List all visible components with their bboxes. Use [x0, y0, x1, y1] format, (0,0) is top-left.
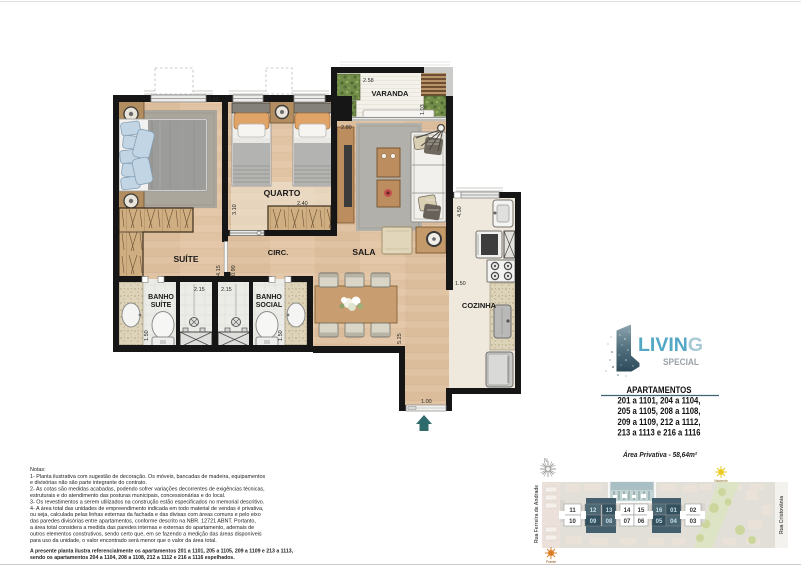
svg-text:07: 07: [624, 519, 631, 525]
svg-text:5.25: 5.25: [397, 333, 403, 344]
svg-text:BANHO: BANHO: [256, 294, 282, 301]
svg-text:2.40: 2.40: [297, 201, 308, 207]
svg-text:213 a 1113 e 216 a 1116: 213 a 1113 e 216 a 1116: [618, 428, 701, 438]
svg-text:VARANDA: VARANDA: [372, 89, 410, 98]
svg-text:201 a 1101, 204 a 1104,: 201 a 1101, 204 a 1104,: [618, 396, 701, 406]
svg-text:16: 16: [656, 508, 663, 514]
svg-text:Poente: Poente: [546, 560, 556, 564]
svg-text:a área total considera a medid: a área total considera a medida das pare…: [30, 525, 254, 531]
svg-text:04: 04: [670, 519, 677, 525]
svg-text:1.50: 1.50: [144, 330, 150, 341]
svg-text:estruturais e do atendimento d: estruturais e do atendimento das postura…: [30, 493, 225, 499]
svg-text:10: 10: [569, 519, 576, 525]
svg-text:A presente planta ilustra refe: A presente planta ilustra referencialmen…: [30, 549, 294, 555]
svg-text:13: 13: [606, 508, 613, 514]
svg-text:BANHO: BANHO: [148, 294, 174, 301]
svg-text:1- Planta ilustrativa com suge: 1- Planta ilustrativa com sugestão de de…: [30, 474, 266, 480]
svg-text:2.80: 2.80: [341, 125, 352, 131]
svg-text:11: 11: [569, 508, 576, 514]
svg-text:SUÍTE: SUÍTE: [151, 300, 172, 309]
svg-text:Nascente: Nascente: [714, 479, 728, 483]
svg-text:para uso da unidade, o valor e: para uso da unidade, o valor encontrado …: [30, 538, 217, 544]
svg-text:14: 14: [624, 508, 631, 514]
svg-text:15: 15: [638, 508, 645, 514]
svg-text:CIRC.: CIRC.: [268, 248, 288, 257]
svg-text:SPECIAL: SPECIAL: [663, 357, 699, 368]
svg-text:Notas:: Notas:: [30, 467, 46, 473]
svg-text:1.50: 1.50: [278, 330, 284, 341]
svg-text:08: 08: [606, 519, 613, 525]
svg-text:Rua Ferreira de Andrade: Rua Ferreira de Andrade: [534, 485, 540, 543]
svg-text:12: 12: [590, 508, 597, 514]
svg-text:09: 09: [590, 519, 597, 525]
svg-text:2- As cotas são medidas acabad: 2- As cotas são medidas acabadas, podend…: [30, 487, 265, 493]
svg-text:2.45: 2.45: [208, 97, 219, 103]
svg-text:2.15: 2.15: [194, 287, 205, 293]
svg-text:Área Privativa - 58,64m²: Área Privativa - 58,64m²: [622, 450, 697, 459]
svg-text:0.90: 0.90: [231, 265, 237, 276]
svg-text:sendo os apartamentos 204 a 11: sendo os apartamentos 204 a 1104, 208 a …: [30, 555, 235, 561]
svg-text:2.15: 2.15: [221, 287, 232, 293]
svg-text:3- Os revestimentos a serem ut: 3- Os revestimentos a serem utilizados n…: [30, 499, 264, 505]
svg-text:1.00: 1.00: [421, 399, 432, 405]
svg-text:SUÍTE: SUÍTE: [173, 254, 198, 264]
svg-text:e divisórias não são parte int: e divisórias não são parte integrante do…: [30, 480, 147, 486]
svg-text:LIVING: LIVING: [638, 334, 703, 356]
svg-text:1.03: 1.03: [420, 104, 426, 115]
svg-text:Rua Cristovânia: Rua Cristovânia: [779, 496, 785, 534]
svg-text:outros elementos construtivos,: outros elementos construtivos, sendo cer…: [30, 531, 262, 537]
svg-text:4.15: 4.15: [216, 265, 222, 276]
svg-text:03: 03: [690, 519, 697, 525]
svg-text:2.58: 2.58: [363, 78, 374, 84]
svg-text:3.10: 3.10: [232, 204, 238, 215]
svg-text:4.50: 4.50: [457, 206, 463, 217]
svg-text:COZINHA: COZINHA: [462, 301, 497, 310]
svg-text:4- A área total das unidades d: 4- A área total das unidades de empreend…: [30, 506, 264, 512]
svg-text:209 a 1109, 212 a 1112,: 209 a 1109, 212 a 1112,: [618, 417, 701, 427]
svg-text:ou seja, calculada pelas linha: ou seja, calculada pelas linhas externas…: [30, 512, 261, 518]
svg-text:02: 02: [690, 508, 697, 514]
svg-text:05: 05: [656, 519, 663, 525]
svg-text:01: 01: [670, 508, 677, 514]
svg-text:QUARTO: QUARTO: [264, 188, 301, 198]
svg-text:SALA: SALA: [352, 247, 375, 257]
svg-text:das paredes divisórias entre a: das paredes divisórias entre apartamento…: [30, 519, 256, 525]
svg-text:06: 06: [638, 519, 645, 525]
svg-text:APARTAMENTOS: APARTAMENTOS: [627, 385, 692, 396]
svg-text:1.50: 1.50: [455, 281, 466, 287]
svg-text:SOCIAL: SOCIAL: [256, 302, 283, 309]
svg-text:205 a 1105, 208 a 1108,: 205 a 1105, 208 a 1108,: [618, 406, 701, 416]
